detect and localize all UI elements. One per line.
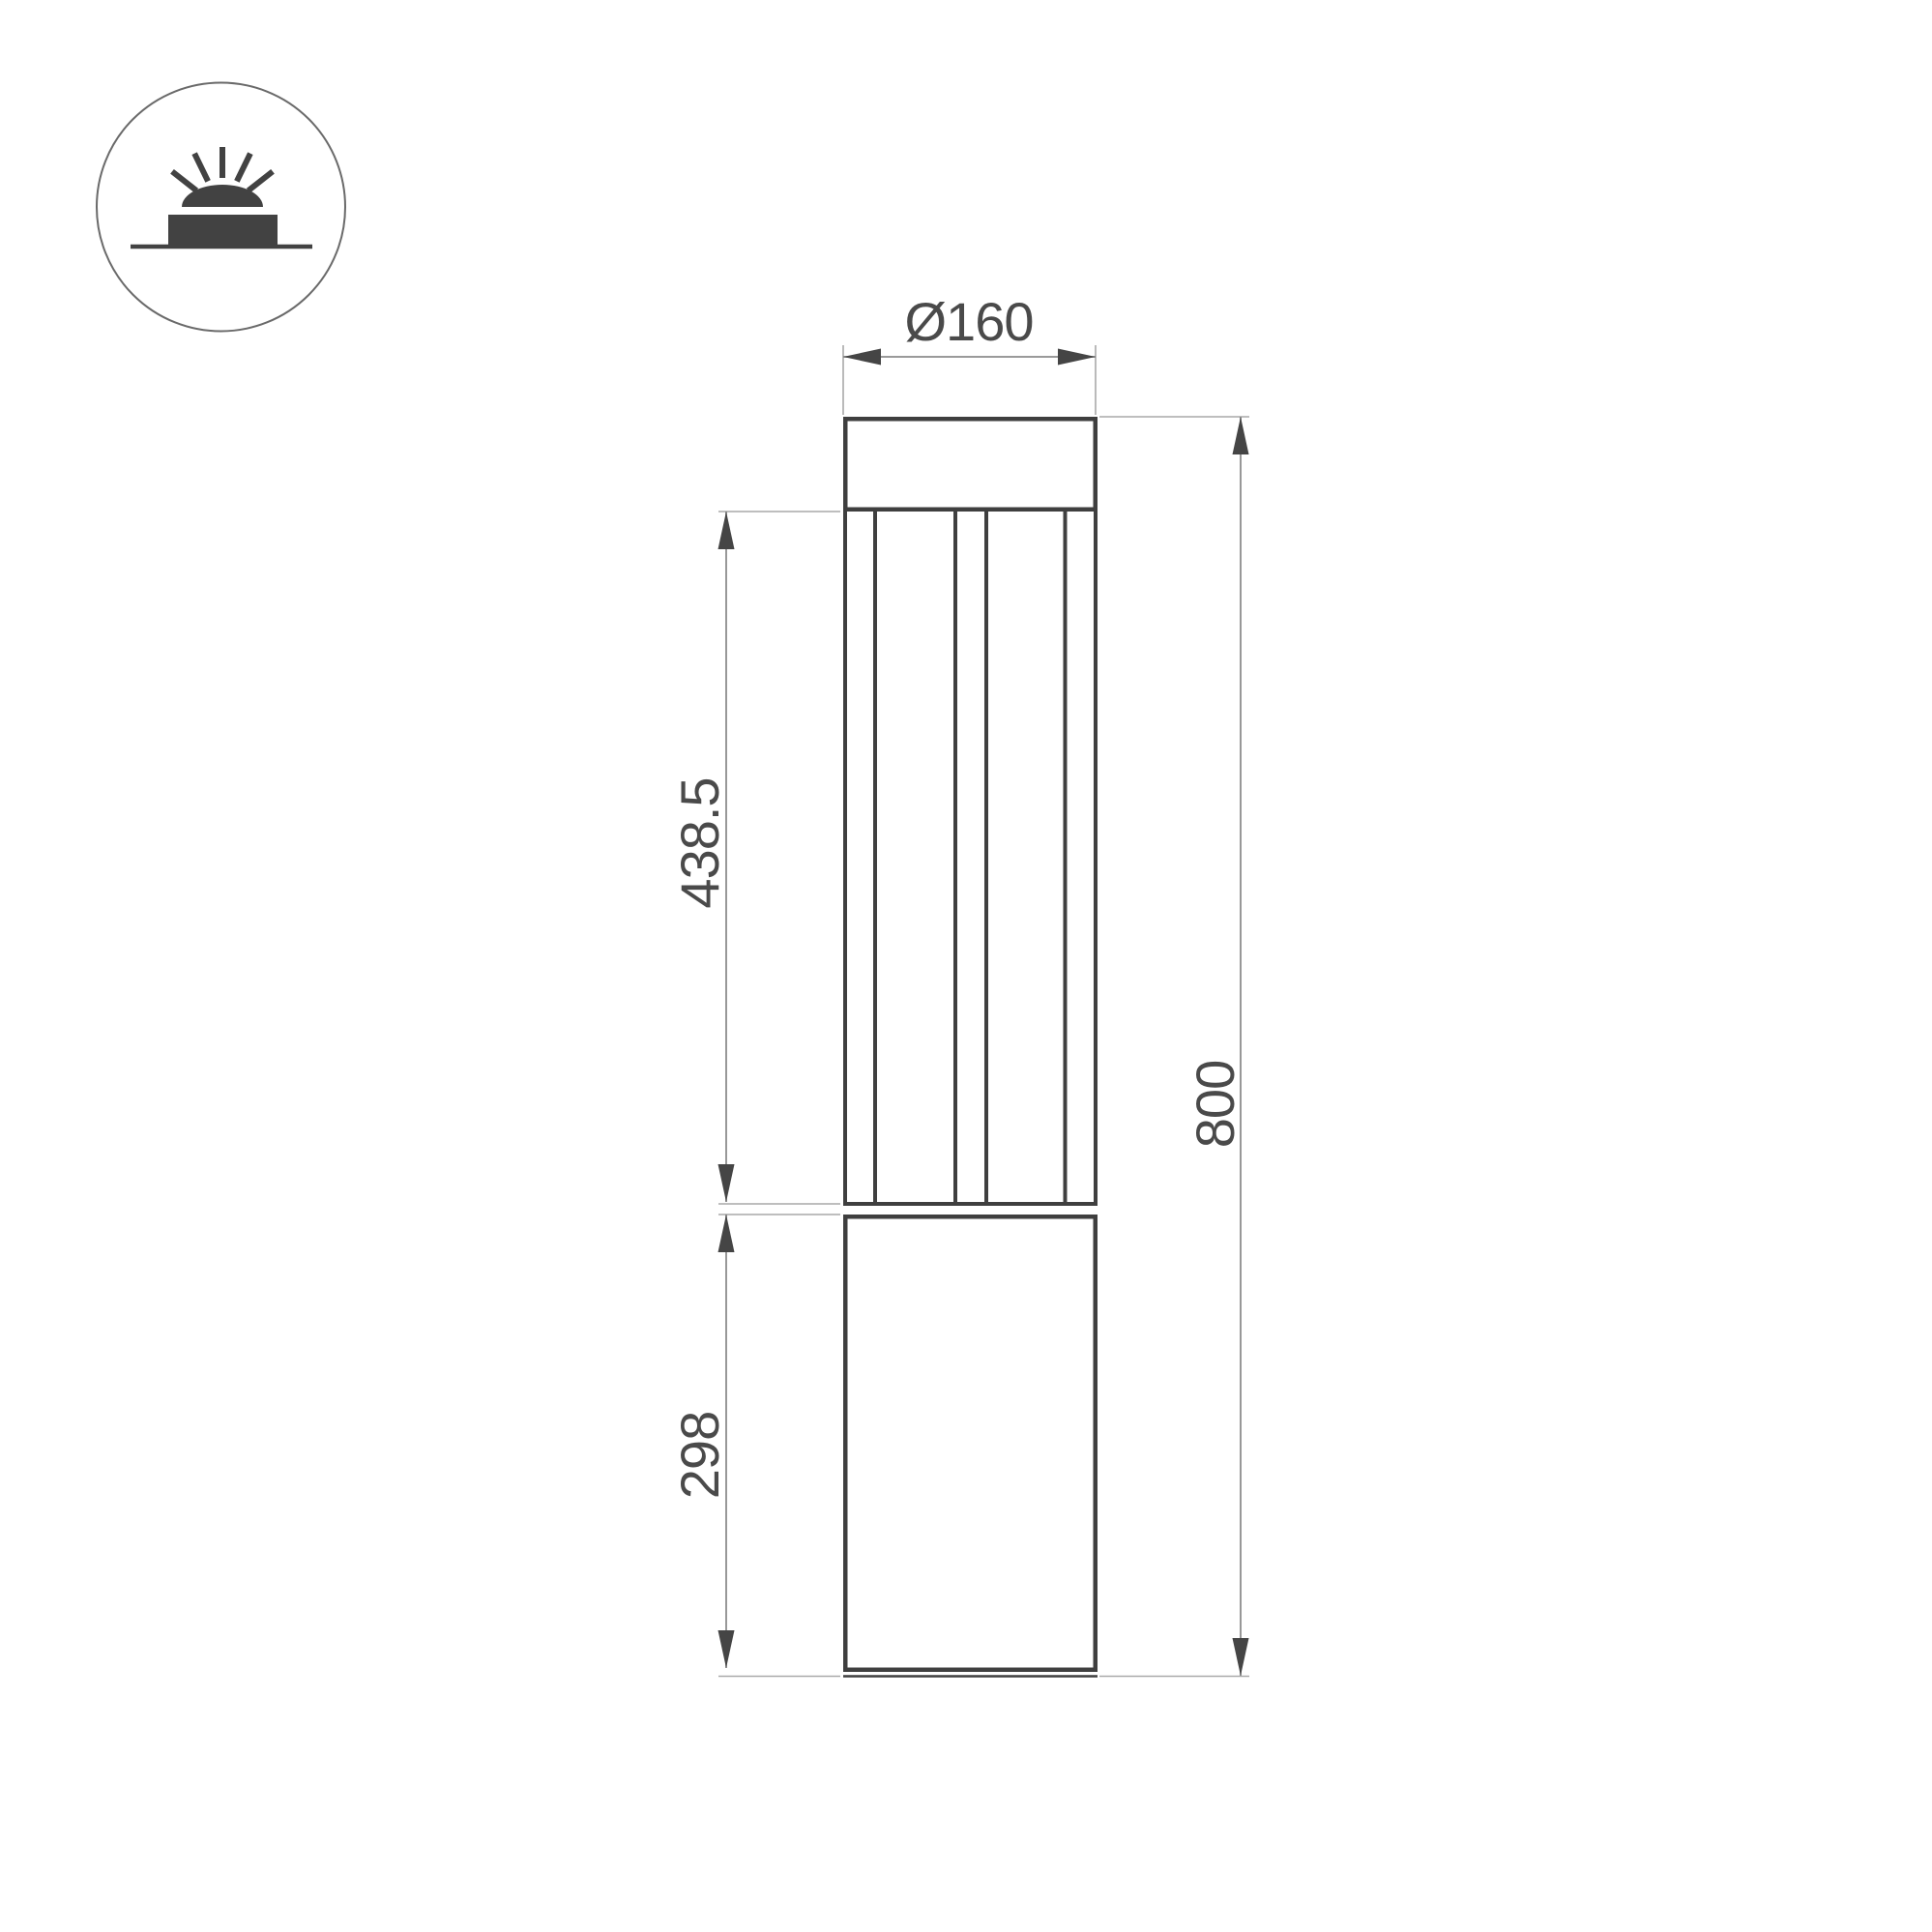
dimension-base-height: 298: [669, 1215, 840, 1677]
dimension-base-height-label: 298: [669, 1412, 730, 1499]
bollard-top-cap: [845, 419, 1096, 510]
drawing-svg: Ø160 438.5 298 800: [0, 0, 1932, 1932]
light-body-icon: [168, 215, 278, 245]
dimension-total-height-label: 800: [1185, 1061, 1245, 1148]
bollard-front-view: [843, 419, 1098, 1676]
surface-mounted-light-icon: [97, 83, 345, 332]
dimension-lantern-height-label: 438.5: [669, 777, 730, 908]
bollard-lantern-section: [843, 512, 1098, 1204]
bollard-base-body: [845, 1216, 1096, 1670]
arrowhead-up-icon: [1233, 417, 1249, 454]
dimension-diameter: Ø160: [843, 291, 1096, 415]
arrowhead-left-icon: [843, 349, 881, 366]
dimension-diameter-label: Ø160: [905, 291, 1034, 352]
arrowhead-up-icon: [718, 1215, 735, 1252]
arrowhead-down-icon: [718, 1164, 735, 1202]
arrowhead-down-icon: [718, 1630, 735, 1668]
technical-drawing-page: Ø160 438.5 298 800: [0, 0, 1932, 1932]
arrowhead-up-icon: [718, 512, 735, 549]
dimension-lantern-height: 438.5: [669, 512, 840, 1204]
dimension-total-height: 800: [1099, 417, 1249, 1677]
arrowhead-down-icon: [1233, 1638, 1249, 1676]
arrowhead-right-icon: [1058, 349, 1096, 366]
